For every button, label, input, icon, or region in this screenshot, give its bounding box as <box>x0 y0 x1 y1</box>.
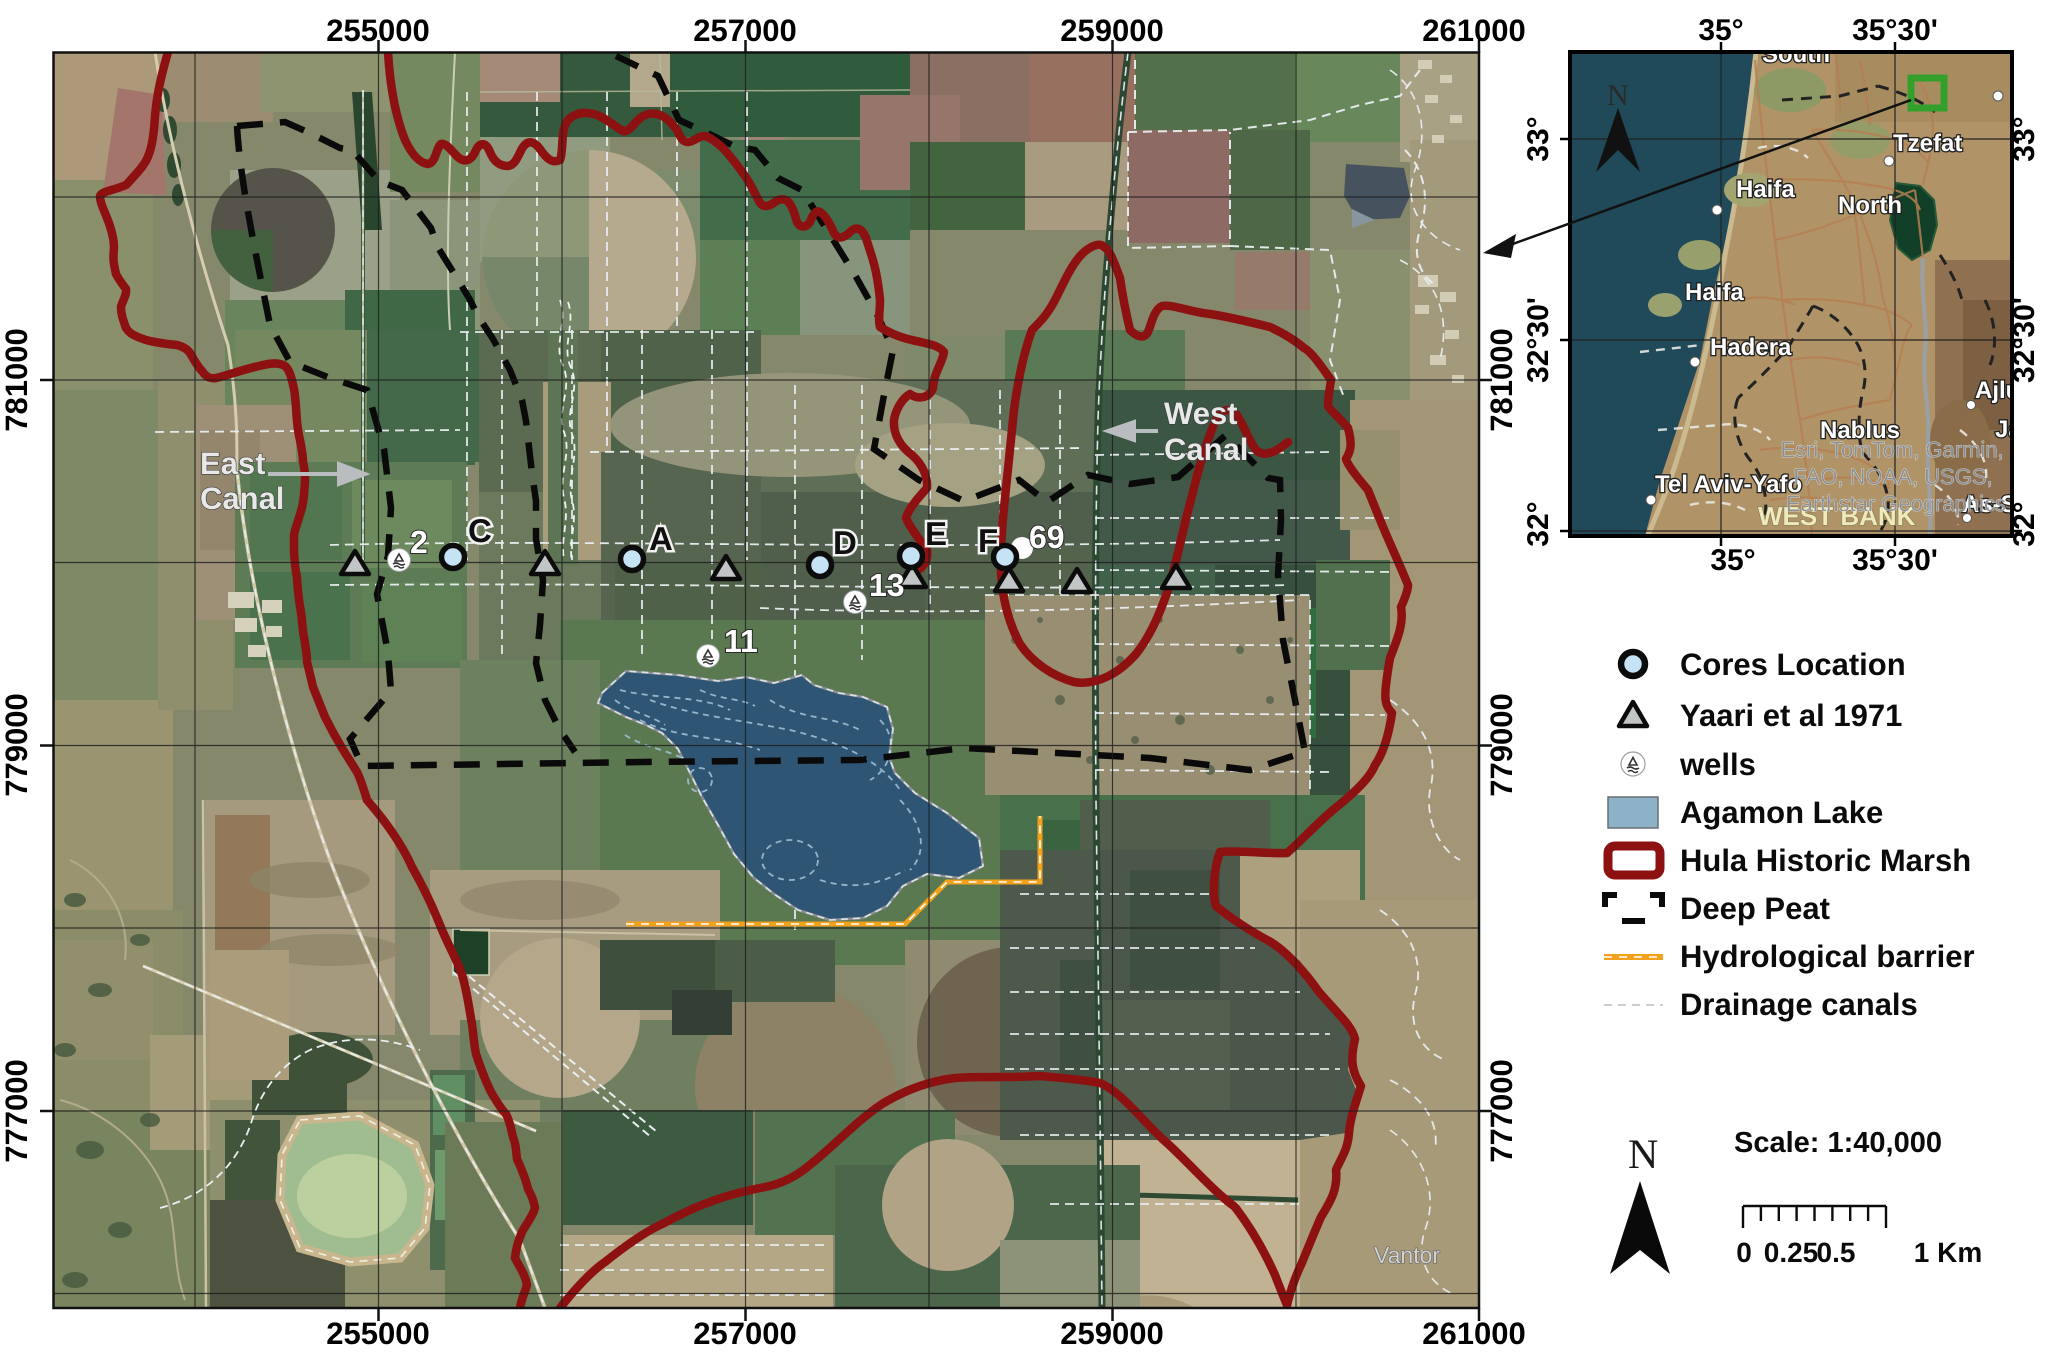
svg-text:259000: 259000 <box>1060 1316 1163 1351</box>
svg-text:261000: 261000 <box>1422 1316 1525 1351</box>
svg-text:N: N <box>1607 79 1629 112</box>
svg-text:D: D <box>833 524 857 561</box>
svg-text:261000: 261000 <box>1422 13 1525 48</box>
svg-text:FAO, NOAA, USGS,: FAO, NOAA, USGS, <box>1793 464 1992 489</box>
svg-text:777000: 777000 <box>0 1059 34 1162</box>
svg-text:255000: 255000 <box>326 1316 429 1351</box>
svg-text:Tel Aviv-Yafo: Tel Aviv-Yafo <box>1655 471 1802 498</box>
svg-text:Agamon Lake: Agamon Lake <box>1680 795 1883 830</box>
svg-text:Scale: 1:40,000: Scale: 1:40,000 <box>1734 1127 1942 1159</box>
svg-text:13: 13 <box>869 567 905 603</box>
svg-text:257000: 257000 <box>693 13 796 48</box>
svg-text:33°: 33° <box>1522 116 1555 161</box>
svg-text:32°: 32° <box>2008 501 2041 546</box>
svg-text:779000: 779000 <box>0 693 34 796</box>
svg-text:Hadera: Hadera <box>1710 334 1792 361</box>
svg-text:F: F <box>978 522 998 559</box>
svg-text:Yaari et al 1971: Yaari et al 1971 <box>1680 698 1902 733</box>
svg-text:N: N <box>1628 1132 1658 1178</box>
svg-text:0.5: 0.5 <box>1817 1237 1856 1268</box>
svg-text:Haifa: Haifa <box>1736 176 1795 203</box>
svg-text:Tzefat: Tzefat <box>1893 130 1962 157</box>
svg-text:1 Km: 1 Km <box>1914 1237 1982 1268</box>
svg-text:East: East <box>200 446 265 481</box>
svg-text:Esri, TomTom, Garmin,: Esri, TomTom, Garmin, <box>1780 437 2003 462</box>
svg-text:11: 11 <box>724 623 758 659</box>
svg-text:35°: 35° <box>1710 544 1755 577</box>
svg-text:781000: 781000 <box>1484 328 1519 431</box>
svg-text:Canal: Canal <box>200 481 284 516</box>
svg-text:0: 0 <box>1736 1237 1752 1268</box>
svg-text:Canal: Canal <box>1164 432 1248 467</box>
svg-text:259000: 259000 <box>1060 13 1163 48</box>
svg-text:781000: 781000 <box>0 328 34 431</box>
svg-text:0.25: 0.25 <box>1764 1237 1819 1268</box>
svg-text:wells: wells <box>1679 747 1756 782</box>
svg-text:North: North <box>1838 192 1902 219</box>
svg-text:A: A <box>649 520 673 557</box>
svg-text:Hydrological barrier: Hydrological barrier <box>1680 939 1975 974</box>
svg-text:Earthstar Geographics: Earthstar Geographics <box>1786 491 2006 516</box>
svg-text:777000: 777000 <box>1484 1059 1519 1162</box>
svg-text:32°: 32° <box>1522 501 1555 546</box>
svg-text:257000: 257000 <box>693 1316 796 1351</box>
svg-text:2: 2 <box>410 524 428 560</box>
svg-text:C: C <box>468 512 492 549</box>
svg-text:E: E <box>925 515 947 552</box>
svg-text:Drainage canals: Drainage canals <box>1680 987 1918 1022</box>
svg-text:779000: 779000 <box>1484 693 1519 796</box>
svg-text:South: South <box>1762 41 1830 68</box>
svg-text:West: West <box>1164 396 1238 431</box>
svg-text:32°30': 32°30' <box>1522 297 1555 383</box>
svg-text:Deep Peat: Deep Peat <box>1680 891 1830 926</box>
svg-text:Cores Location: Cores Location <box>1680 647 1906 682</box>
svg-text:Hula Historic Marsh: Hula Historic Marsh <box>1680 843 1971 878</box>
svg-text:Haifa: Haifa <box>1685 279 1744 306</box>
svg-text:35°30': 35°30' <box>1852 544 1938 577</box>
svg-text:69: 69 <box>1029 519 1065 555</box>
svg-text:Vantor: Vantor <box>1374 1242 1440 1268</box>
svg-text:255000: 255000 <box>326 13 429 48</box>
